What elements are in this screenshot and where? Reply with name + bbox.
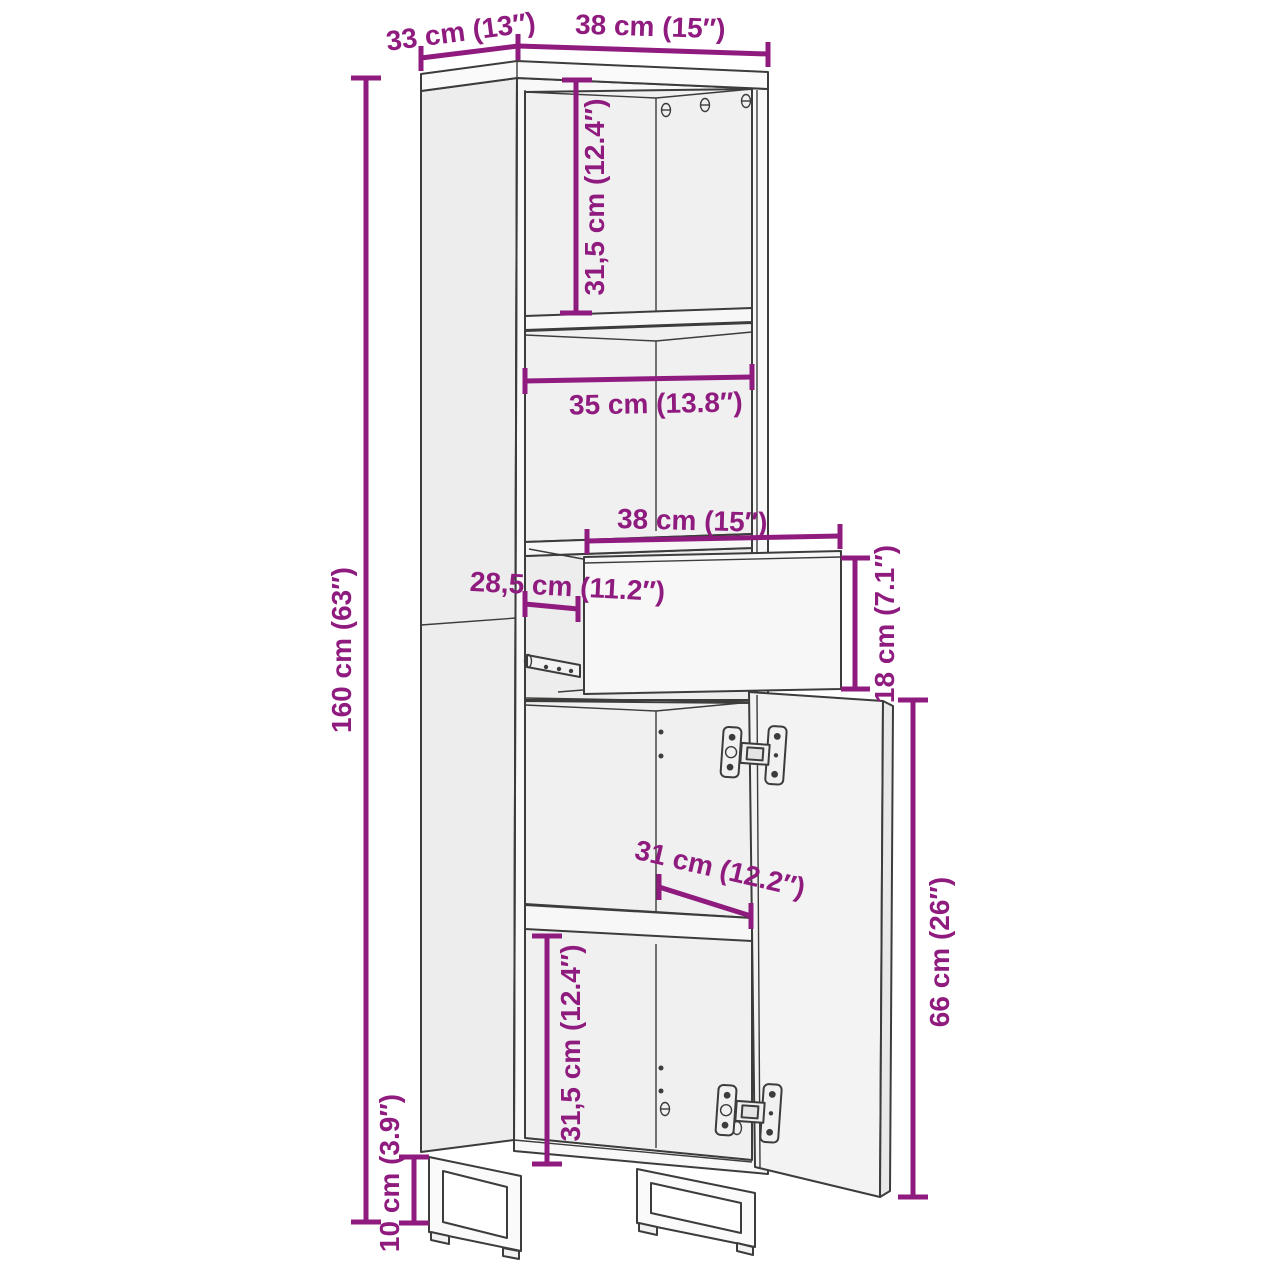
dim-overall-height-label: 160 cm (63″) [326, 567, 357, 733]
shelf-pin-hole [659, 1066, 664, 1071]
side-panel [421, 78, 517, 1152]
dim-door-height: 66 cm (26″) [898, 700, 955, 1197]
metal-leg-left [429, 1157, 521, 1259]
dim-drawer-width-label: 38 cm (15″) [617, 503, 768, 538]
leg-foot [503, 1248, 519, 1259]
dim-line [518, 46, 768, 54]
dim-middle-shelf-label: 35 cm (13.8″) [569, 386, 743, 420]
dim-upper-compartment-label: 31,5 cm (12.4″) [579, 98, 610, 295]
shelf-pin-hole [659, 1089, 664, 1094]
shelf-pin-hole [659, 730, 664, 735]
dim-top-depth-label: 33 cm (13″) [384, 6, 537, 56]
metal-leg-right [637, 1169, 755, 1255]
dim-door-height-label: 66 cm (26″) [924, 877, 955, 1027]
dim-top-width: 38 cm (15″) [518, 9, 768, 67]
slide-rail-hole [569, 669, 573, 673]
dim-lower-compartment-label: 31,5 cm (12.4″) [555, 944, 586, 1141]
top-compartment [525, 89, 752, 317]
shelf-pin-hole [659, 754, 664, 759]
slide-rail-hole [544, 665, 548, 669]
dim-leg-height-label: 10 cm (3.9″) [374, 1094, 405, 1252]
dimension-diagram-svg: 33 cm (13″) 38 cm (15″) 31,5 cm (12.4″) … [0, 0, 1280, 1280]
dim-overall-height: 160 cm (63″) [326, 78, 381, 1222]
dim-top-width-label: 38 cm (15″) [575, 9, 726, 45]
door-compartment-upper [525, 701, 752, 918]
door-edge-face [880, 701, 893, 1197]
slide-rail-hole [557, 667, 561, 671]
cabinet-drawing [421, 61, 893, 1259]
drawer-front [584, 551, 841, 694]
dim-drawer-height: 18 cm (7.1″) [841, 545, 900, 703]
dim-drawer-height-label: 18 cm (7.1″) [869, 545, 900, 703]
product-dimension-page: 33 cm (13″) 38 cm (15″) 31,5 cm (12.4″) … [0, 0, 1280, 1280]
